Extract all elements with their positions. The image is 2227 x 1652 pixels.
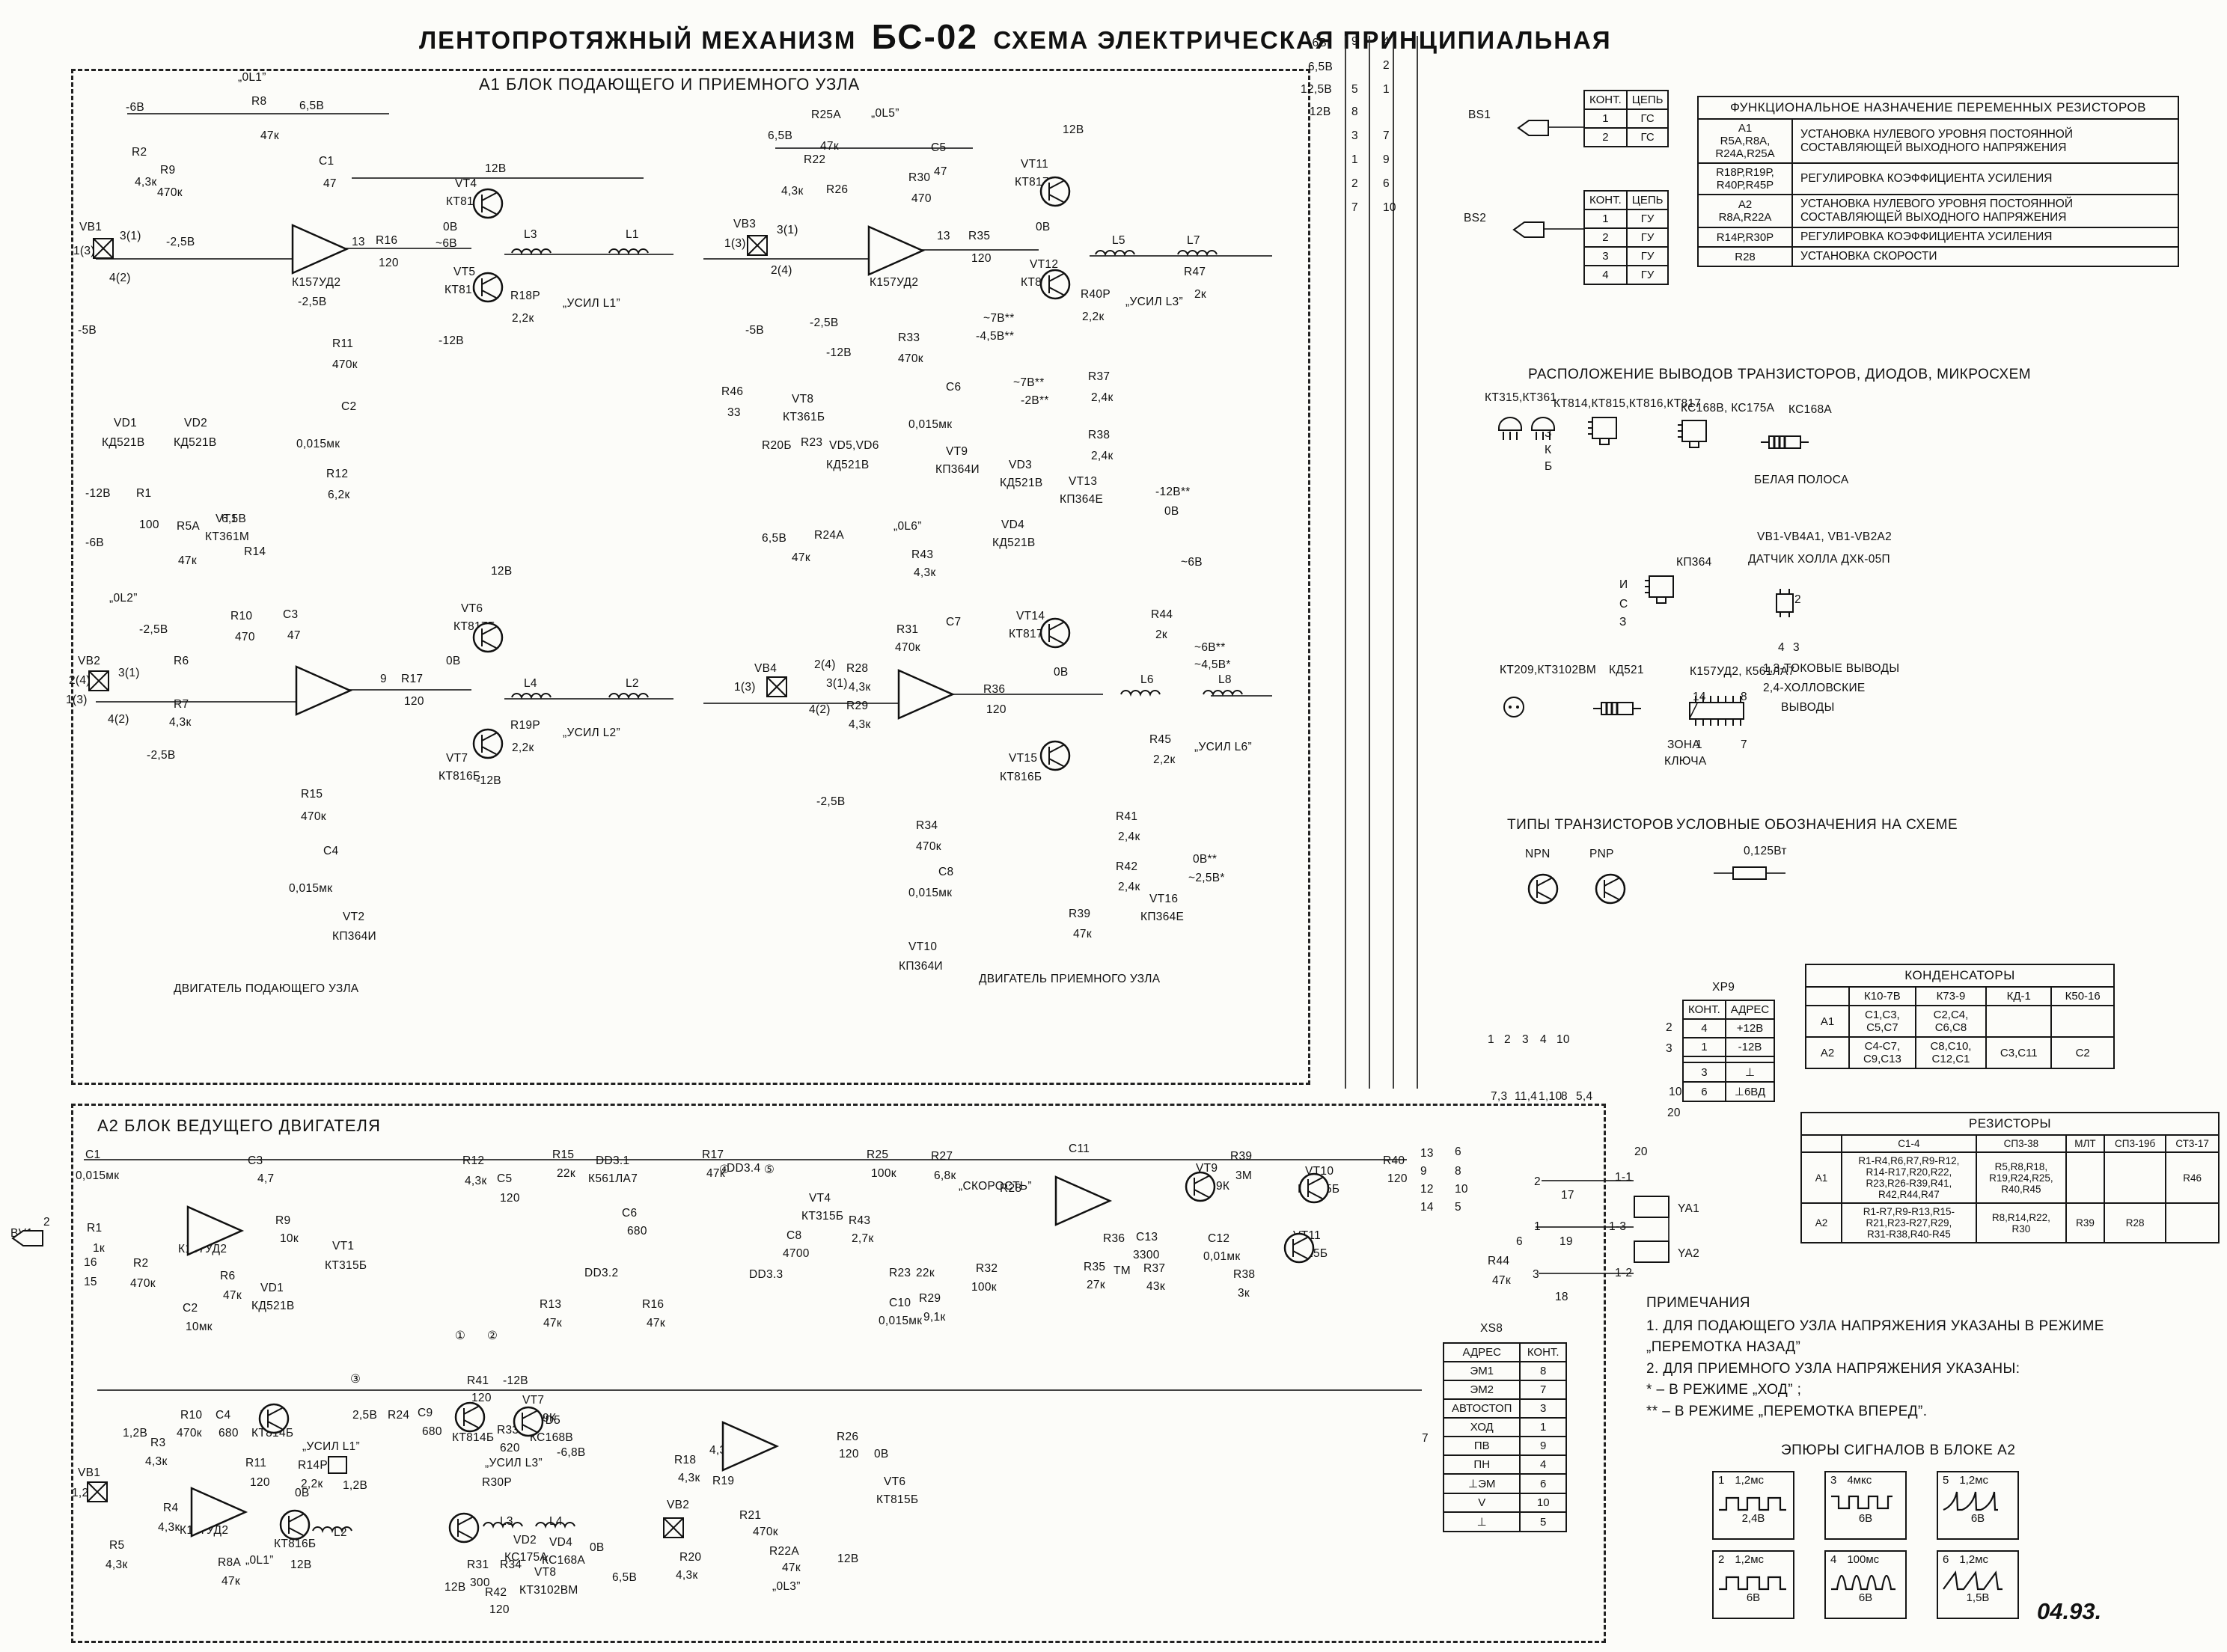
component-label: 3300 [1133, 1249, 1160, 1262]
table-cell: СП3-38 [1976, 1135, 2066, 1152]
table-cell: 9 [1520, 1437, 1566, 1455]
table-cell: 7 [1520, 1380, 1566, 1399]
component-label: КТ3102ВМ [519, 1585, 578, 1597]
to220-icon [1586, 416, 1621, 449]
component-label: DD3.4 [727, 1163, 760, 1175]
component-label: VD3 [1009, 459, 1032, 472]
component-label: „0L3” [772, 1581, 801, 1594]
component-label: ① [455, 1330, 465, 1343]
component-label: 4,3к [676, 1570, 698, 1582]
waveform-period: 1,2мс [1959, 1474, 1988, 1487]
component-label: R32 [976, 1263, 998, 1276]
component-label: PNP [1589, 848, 1614, 861]
component-label: -5В [78, 325, 97, 337]
note-line: * – В РЕЖИМЕ „ХОД” ; [1646, 1380, 2223, 1401]
component-label: 470к [895, 642, 920, 655]
component-label: 4,3к [169, 717, 192, 729]
circ-icon [471, 621, 504, 654]
table-cell: ⊥6ВД [1726, 1082, 1775, 1101]
table-cell: 10 [1520, 1493, 1566, 1512]
func-table: А1 R5А,R8А, R24А,R25АУСТАНОВКА НУЛЕВОГО … [1697, 118, 2179, 267]
circ-icon [471, 727, 504, 760]
circ-icon [447, 1511, 480, 1544]
component-label: VB1 [78, 1467, 100, 1480]
component-label: 3(1) [826, 678, 848, 691]
op-icon [1055, 1176, 1111, 1226]
component-label: ~2,5В* [1188, 872, 1225, 885]
component-label: 2к [1155, 629, 1167, 642]
component-label: 20 [1634, 1146, 1648, 1159]
component-label: R19Р [510, 720, 540, 732]
component-label: „УСИЛ L1” [563, 298, 620, 310]
component-label: К157УД2 [870, 277, 918, 290]
waveform-trace-icon [1830, 1567, 1901, 1594]
component-label: VD1 [260, 1282, 284, 1295]
coil-icon [482, 1514, 525, 1528]
waveform-level: 2,4В [1714, 1512, 1793, 1525]
circ-icon [471, 271, 504, 304]
component-label: R20 [679, 1552, 701, 1564]
component-label: R4 [163, 1502, 178, 1515]
component-label: VT6 [461, 603, 483, 616]
op-icon [292, 224, 347, 274]
component-label: XS8 [1480, 1323, 1503, 1336]
table-cell: МЛТ [2066, 1135, 2104, 1152]
component-label: C2 [341, 401, 356, 414]
table-cell: ПН [1444, 1455, 1520, 1474]
component-label: 5 [1455, 1202, 1461, 1214]
component-label: -12В [85, 488, 111, 501]
component-label: С [1619, 599, 1628, 611]
circ-icon [1039, 268, 1072, 301]
table-cell: АДРЕС [1726, 1000, 1775, 1019]
component-label: 0В [1036, 221, 1051, 234]
table-cell: ГС [1627, 128, 1669, 147]
component-label: 47к [820, 141, 839, 153]
component-label: R24А [814, 530, 844, 542]
table-cell: КОНТ. [1520, 1343, 1566, 1362]
waveform-trace-icon [1942, 1487, 2014, 1514]
table-cell: АВТОСТОП [1444, 1399, 1520, 1418]
table-cell: РЕГУЛИРОВКА КОЭФФИЦИЕНТА УСИЛЕНИЯ [1792, 163, 2178, 195]
component-label: VT11 [1021, 159, 1048, 171]
component-label: 6 [1383, 178, 1390, 191]
table-cell: СП3-19б [2104, 1135, 2166, 1152]
table-cell: ⊥ [1726, 1062, 1775, 1082]
component-label: VB2 [667, 1499, 689, 1512]
component-label: 16 [84, 1257, 97, 1270]
table-cell: ЭМ1 [1444, 1362, 1520, 1380]
table-cell: ГУ [1627, 228, 1669, 247]
component-label: 7 [1422, 1433, 1429, 1445]
component-label: C5 [931, 142, 946, 155]
component-label: 7 [1351, 202, 1358, 215]
component-label: R2 [132, 147, 147, 159]
component-label: 2,4к [1118, 831, 1140, 844]
component-label: КЛЮЧА [1664, 756, 1707, 768]
component-label: R40 [1383, 1155, 1405, 1168]
component-label: 7,3 [1491, 1091, 1507, 1104]
table-cell: С8,С10, С12,С1 [1916, 1037, 1986, 1068]
table-cell: R28 [1698, 247, 1792, 266]
component-label: C10 [889, 1297, 911, 1310]
component-label: 4,3к [465, 1175, 487, 1188]
component-label: R35 [1084, 1261, 1105, 1274]
component-label: КТ209,КТ3102ВМ [1500, 664, 1596, 677]
note-line: 1. ДЛЯ ПОДАЮЩЕГО УЗЛА НАПРЯЖЕНИЯ УКАЗАНЫ… [1646, 1316, 2223, 1338]
func-table-title: ФУНКЦИОНАЛЬНОЕ НАЗНАЧЕНИЕ ПЕРЕМЕННЫХ РЕЗ… [1697, 96, 2179, 118]
waveform-level: 6В [1826, 1512, 1905, 1525]
component-label: 1,2В [343, 1480, 367, 1493]
component-label: 1-2 [1615, 1267, 1632, 1280]
table-cell: 3 [1584, 247, 1627, 266]
component-label: 47к [792, 552, 810, 565]
component-label: КТ315Б [801, 1211, 843, 1223]
component-label: 47 [323, 178, 337, 191]
table-cell: R39 [2066, 1203, 2104, 1243]
component-label: BS1 [1468, 109, 1491, 122]
component-label: R42 [485, 1587, 507, 1600]
component-label: 120 [500, 1193, 520, 1205]
component-label: КП364Е [1140, 911, 1184, 924]
component-label: 2 [1504, 1034, 1511, 1047]
component-label: VT16 [1149, 893, 1178, 906]
circ-icon [1298, 1172, 1331, 1205]
component-label: К157УД2 [292, 277, 340, 290]
component-label: 9,1к [923, 1312, 946, 1324]
coil-icon [1202, 682, 1245, 696]
component-label: 4,3к [106, 1559, 128, 1572]
waveform-panel: 61,2мс1,5В [1937, 1550, 2019, 1619]
component-label: 0,015мк [908, 419, 952, 432]
xp9-table: КОНТ.АДРЕС4+12В1-12В3⊥6⊥6ВД [1682, 1000, 1775, 1102]
component-label: „0L6” [893, 521, 922, 533]
waveform-period: 100мс [1847, 1553, 1879, 1566]
component-label: „0L2” [109, 593, 138, 605]
component-label: R15 [301, 789, 323, 801]
r-icon [1634, 1196, 1670, 1218]
component-label: -2,5В [139, 624, 168, 637]
component-label: 0,015мк [289, 883, 332, 896]
db-icon [1592, 700, 1642, 717]
table-cell [1986, 1006, 2051, 1037]
component-label: 100к [871, 1168, 896, 1181]
component-label: 470к [332, 359, 358, 372]
component-label: R43 [911, 549, 933, 562]
note-line: ** – В РЕЖИМЕ „ПЕРЕМОТКА ВПЕРЕД”. [1646, 1401, 2223, 1423]
table-cell: С1,С3, С5,С7 [1849, 1006, 1916, 1037]
component-label: R41 [1116, 811, 1137, 824]
component-label: 12В [491, 566, 512, 578]
bs1-table: КОНТ.ЦЕПЬ1ГС2ГС [1583, 90, 1669, 147]
table-cell: 5 [1520, 1512, 1566, 1532]
table-cell: А1 R5А,R8А, R24А,R25А [1698, 119, 1792, 163]
coil-icon [311, 1519, 355, 1532]
component-label: 3 [1666, 1043, 1672, 1056]
component-label: C11 [1069, 1143, 1090, 1156]
table-cell: +12В [1726, 1019, 1775, 1038]
component-label: VB4 [754, 663, 777, 676]
waveform-period: 1,2мс [1735, 1474, 1764, 1487]
component-label: ХР9 [1712, 982, 1735, 994]
component-label: 6 [1516, 1236, 1523, 1249]
component-label: КТ814,КТ815,КТ816,КТ817 [1554, 398, 1701, 411]
component-label: R6 [220, 1270, 235, 1283]
component-label: 1-3 [1609, 1221, 1626, 1234]
component-label: 470к [157, 187, 183, 200]
component-label: „УСИЛ L1” [302, 1441, 360, 1454]
table-cell: А2 R8А,R22А [1698, 195, 1792, 227]
component-label: VD4 [549, 1537, 572, 1549]
op-icon [296, 666, 351, 715]
component-label: 27к [1087, 1279, 1105, 1292]
component-label: BS2 [1464, 212, 1486, 225]
component-label: И [1619, 579, 1628, 592]
component-label: „УСИЛ L3” [485, 1457, 543, 1470]
component-label: 2 [1666, 1022, 1672, 1035]
component-label: 18 [1555, 1291, 1568, 1304]
component-label: VВ1-VВ4А1, VВ1-VВ2А2 [1757, 531, 1892, 544]
circ-icon [453, 1401, 486, 1434]
notes: ПРИМЕЧАНИЯ1. ДЛЯ ПОДАЮЩЕГО УЗЛА НАПРЯЖЕН… [1646, 1293, 2223, 1422]
table-cell: УСТАНОВКА СКОРОСТИ [1792, 247, 2178, 266]
component-label: 3(1) [118, 667, 140, 680]
table-cell: 3 [1683, 1062, 1726, 1082]
component-label: 2,2к [1082, 311, 1105, 324]
coil-icon [510, 685, 554, 699]
connector-xs8: АДРЕСКОНТ.ЭМ18ЭМ27АВТОСТОП3ХОД1ПВ9ПН4⊥ЭМ… [1443, 1342, 1567, 1532]
component-label: 2,2к [512, 313, 534, 325]
component-label: 0В** [1193, 854, 1217, 866]
component-label: 4700 [783, 1248, 810, 1261]
component-label: 19 [1559, 1236, 1573, 1249]
table-cell [1726, 1056, 1775, 1062]
table-cell: R18Р,R19Р, R40Р,R45Р [1698, 163, 1792, 195]
component-label: R3 [150, 1437, 165, 1450]
can-icon [1501, 696, 1527, 721]
res-table-title: РЕЗИСТОРЫ [1800, 1112, 2220, 1134]
component-label: ③ [350, 1374, 361, 1386]
table-cell: ГУ [1627, 266, 1669, 284]
component-label: 1 [1351, 154, 1358, 167]
component-label: R15 [552, 1149, 574, 1162]
component-label: 2 [1383, 60, 1390, 73]
table-cell: 6 [1683, 1082, 1726, 1101]
component-label: КП364И [899, 961, 943, 973]
component-label: 7 [1383, 130, 1390, 143]
component-label: R46 [721, 386, 743, 399]
component-label: 47к [222, 1576, 240, 1588]
table-cell [1801, 1135, 1842, 1152]
res-table: С1-4СП3-38МЛТСП3-19бСТ3-17А1R1-R4,R6,R7,… [1800, 1134, 2220, 1243]
table-cell: К10-7В [1849, 987, 1916, 1006]
component-label: 47 [934, 166, 947, 179]
component-label: 17 [1561, 1190, 1574, 1202]
table-cell: ПВ [1444, 1437, 1520, 1455]
waveform-panel: 11,2мс2,4В [1712, 1471, 1794, 1540]
component-label: КТ816Б [1000, 771, 1042, 784]
component-label: 0,015мк [879, 1315, 922, 1328]
component-label: VT10 [908, 941, 937, 954]
component-label: DD3.2 [584, 1267, 618, 1280]
coil-icon [1094, 242, 1137, 256]
component-label: 15 [84, 1276, 97, 1289]
plug-icon [12, 1229, 43, 1248]
component-label: 1(3) [734, 682, 756, 694]
component-label: 10 [1557, 1034, 1570, 1047]
component-label: 22к [916, 1267, 935, 1280]
component-label: 6,5В [222, 513, 246, 526]
component-label: VD4 [1001, 519, 1024, 532]
component-label: L3 [524, 229, 537, 242]
component-label: 47к [647, 1318, 665, 1330]
component-label: 4 [1383, 36, 1390, 49]
table-cell: R14Р,R30Р [1698, 227, 1792, 247]
table-cell [2166, 1203, 2219, 1243]
component-label: R31 [896, 624, 918, 637]
component-label: 0,01мк [1203, 1251, 1240, 1264]
hall-icon [1775, 588, 1794, 618]
component-label: R22 [804, 154, 825, 167]
table-cell: К50-16 [2051, 987, 2114, 1006]
component-label: VB3 [733, 218, 756, 231]
component-label: R21 [739, 1510, 761, 1523]
component-label: 120 [1387, 1173, 1408, 1186]
table-cell: V [1444, 1493, 1520, 1512]
resistors-section: РЕЗИСТОРЫ С1-4СП3-38МЛТСП3-19бСТ3-17А1R1… [1800, 1112, 2220, 1243]
circ-icon [1184, 1170, 1217, 1203]
component-label: VT1 [332, 1240, 354, 1253]
component-label: C2 [183, 1303, 198, 1315]
component-label: 470 [911, 193, 932, 206]
component-label: 0,015мк [296, 438, 340, 451]
component-label: „0L5” [871, 108, 899, 120]
component-label: ~4,5В* [1194, 659, 1231, 672]
coil-icon [534, 1514, 578, 1528]
component-label: 470 [235, 631, 255, 644]
note-line: „ПЕРЕМОТКА НАЗАД” [1646, 1337, 2223, 1359]
table-cell: РЕГУЛИРОВКА КОЭФФИЦИЕНТА УСИЛЕНИЯ [1792, 227, 2178, 247]
component-label: VT15 [1009, 753, 1037, 765]
component-label: R34 [916, 820, 938, 833]
table-cell: ЦЕПЬ [1627, 191, 1669, 209]
table-cell [2066, 1152, 2104, 1203]
component-label: „УСИЛ L2” [563, 727, 620, 740]
component-label: C3 [248, 1155, 263, 1168]
component-label: ТМ [1113, 1265, 1131, 1278]
component-label: 13 [352, 236, 365, 249]
component-label: 1 [1534, 1221, 1541, 1234]
component-label: ~6В [436, 238, 457, 251]
note-line: 2. ДЛЯ ПРИЕМНОГО УЗЛА НАПРЯЖЕНИЯ УКАЗАНЫ… [1646, 1359, 2223, 1380]
table-cell: 1 [1520, 1418, 1566, 1437]
component-label: ② [487, 1330, 498, 1343]
component-label: 470к [130, 1278, 156, 1291]
component-label: ④ [719, 1164, 730, 1177]
component-label: R2 [133, 1258, 148, 1270]
component-label: R1 [136, 488, 151, 501]
component-label: 1 [1383, 84, 1390, 97]
waveform-number: 1 [1718, 1474, 1724, 1487]
component-label: 2,4к [1118, 881, 1140, 894]
component-label: 100к [971, 1282, 997, 1294]
waveform-trace-icon [1717, 1567, 1789, 1594]
component-label: 12В [485, 163, 506, 176]
op-icon [187, 1206, 242, 1255]
table-cell: 1 [1683, 1038, 1726, 1056]
waveform-number: 6 [1943, 1553, 1949, 1566]
component-label: R30 [908, 172, 930, 185]
component-label: „0L1” [245, 1555, 274, 1567]
component-label: ДАТЧИК ХОЛЛА ДХК-05П [1748, 554, 1890, 566]
component-label: 5 [1351, 84, 1358, 97]
circ-icon [278, 1508, 311, 1541]
component-label: 9 [380, 673, 387, 686]
table-cell: АДРЕС [1444, 1343, 1520, 1362]
waveform-level: 1,5В [1938, 1591, 2017, 1604]
xb-icon [88, 670, 109, 691]
component-label: 4(2) [109, 272, 131, 285]
component-label: 47к [782, 1562, 801, 1575]
component-label: VT13 [1069, 476, 1097, 489]
component-label: C8 [938, 866, 953, 879]
component-label: 10мк [186, 1321, 213, 1334]
r-icon [1634, 1240, 1670, 1263]
component-label: 0В [295, 1487, 310, 1500]
component-label: З [1619, 617, 1627, 629]
circ-icon [512, 1405, 545, 1438]
waveform-header: 4100мс [1826, 1552, 1905, 1566]
component-label: -12В** [1155, 486, 1191, 499]
component-label: 14 [1420, 1202, 1434, 1214]
component-label: 3к [1238, 1288, 1250, 1300]
component-label: YA2 [1678, 1248, 1699, 1261]
waveform-header: 34мкс [1826, 1472, 1905, 1487]
component-label: R29 [846, 700, 868, 713]
waveform-header: 61,2мс [1938, 1552, 2017, 1566]
component-label: 8 [1455, 1166, 1461, 1178]
component-label: C5 [497, 1173, 512, 1186]
component-label: 8 [1351, 106, 1358, 119]
component-label: 6,5В [1308, 61, 1333, 74]
table-cell: ГС [1627, 109, 1669, 128]
circ-icon [1527, 872, 1559, 905]
table-cell: R1-R7,R9-R13,R15- R21,R23-R27,R29, R31-R… [1842, 1203, 1976, 1243]
table-cell: К73-9 [1916, 987, 1986, 1006]
legend-title: УСЛОВНЫЕ ОБОЗНАЧЕНИЯ НА СХЕМЕ [1676, 817, 1958, 833]
table-cell: ⊥ЭМ [1444, 1474, 1520, 1493]
waveform-level: 6В [1714, 1591, 1793, 1604]
coil-icon [1176, 242, 1220, 256]
component-label: -12В [439, 335, 464, 348]
component-label: КП364Е [1060, 494, 1103, 507]
component-label: YA1 [1678, 1203, 1699, 1216]
component-label: 4,3к [145, 1456, 168, 1469]
component-label: КТ361М [205, 531, 249, 544]
component-label: C4 [216, 1410, 230, 1422]
waveform-panel: 34мкс6В [1824, 1471, 1907, 1540]
component-label: 6,5В [768, 130, 792, 143]
transistor-types-title: ТИПЫ ТРАНЗИСТОРОВ [1507, 817, 1673, 833]
component-label: R26 [826, 184, 848, 197]
xb-icon [766, 676, 787, 697]
component-label: 1 [1488, 1034, 1494, 1047]
component-label: 4,7 [257, 1173, 274, 1186]
component-label: R39 [1069, 908, 1090, 921]
component-label: 1(3) [66, 694, 88, 707]
circ-icon [1594, 872, 1627, 905]
table-cell: R8,R14,R22, R30 [1976, 1203, 2066, 1243]
